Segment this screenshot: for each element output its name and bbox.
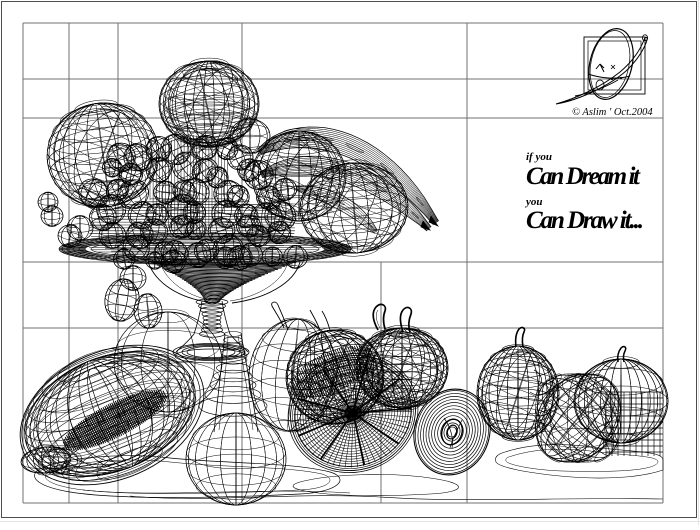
svg-text:Can Draw it...: Can Draw it... (526, 207, 644, 234)
svg-text:Can Dream it: Can Dream it (526, 163, 641, 190)
svg-text:if you: if you (526, 151, 552, 163)
svg-text:© Aslim ʹ Oct.2004: © Aslim ʹ Oct.2004 (572, 107, 653, 118)
